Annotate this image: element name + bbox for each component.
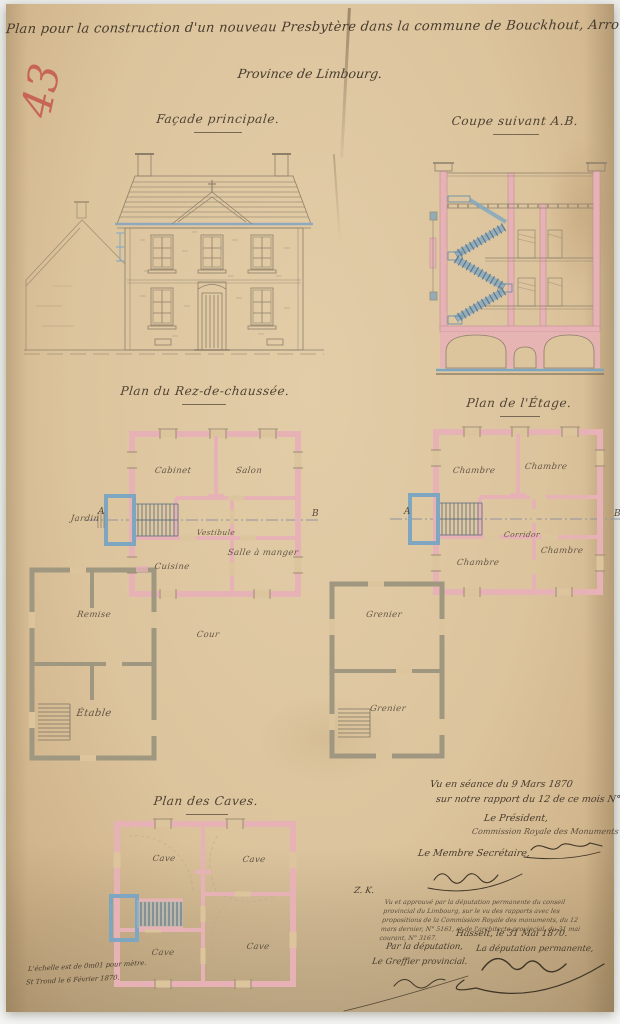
room-label-cabinet: Cabinet bbox=[154, 466, 192, 476]
side-annex-gable bbox=[26, 202, 125, 350]
signature-secretary bbox=[428, 874, 522, 891]
etage-title-rule bbox=[500, 416, 540, 417]
signature-deputation bbox=[456, 959, 604, 994]
signature-president bbox=[524, 843, 602, 859]
scanned-plan-page: { "colors":{ "paper":"#dcc49d","wall_pin… bbox=[0, 0, 620, 1024]
room-label-corridor: Corridor bbox=[503, 530, 540, 539]
room-label-chambre-4: Chambre bbox=[540, 546, 584, 556]
room-label-chambre-2: Chambre bbox=[524, 462, 568, 472]
signatures-overlay bbox=[336, 764, 620, 1014]
facade-title-rule bbox=[194, 132, 242, 133]
porch-fragments bbox=[430, 212, 437, 300]
room-label-cave-1: Cave bbox=[152, 854, 176, 864]
staircase-section bbox=[448, 196, 512, 324]
archive-number: 43 bbox=[11, 59, 70, 121]
room-label-grenier-1: Grenier bbox=[365, 610, 402, 620]
room-label-etable: Étable bbox=[76, 708, 113, 719]
room-label-cave-2: Cave bbox=[242, 855, 266, 865]
facade-title: Façade principale. bbox=[156, 112, 281, 126]
signature-greffier bbox=[344, 976, 468, 1011]
coupe-title-rule bbox=[493, 134, 539, 135]
document-title-line1: Plan pour la construction d'un nouveau P… bbox=[5, 18, 614, 37]
etage-title: Plan de l'Étage. bbox=[466, 396, 573, 410]
room-label-grenier-2: Grenier bbox=[369, 704, 406, 714]
coupe-title: Coupe suivant A.B. bbox=[451, 114, 579, 128]
facade-elevation-drawing bbox=[22, 136, 327, 371]
upper-windows bbox=[148, 235, 276, 273]
document-title-line2: Province de Limbourg. bbox=[5, 66, 615, 81]
section-marker-b-rdc: B bbox=[312, 509, 319, 519]
stair-annex-caves bbox=[111, 896, 183, 940]
lower-windows bbox=[148, 288, 276, 329]
room-label-vestibule: Vestibule bbox=[196, 528, 236, 537]
room-label-remise: Remise bbox=[76, 610, 111, 620]
cellar-vaults bbox=[436, 326, 604, 374]
room-label-chambre-3: Chambre bbox=[456, 558, 500, 568]
room-label-cave-3: Cave bbox=[151, 948, 175, 958]
dimension-ticks bbox=[116, 233, 125, 261]
outbuilding-plan bbox=[32, 570, 154, 758]
chimneys bbox=[135, 154, 291, 176]
section-drawing bbox=[430, 138, 610, 383]
main-roof bbox=[117, 176, 311, 224]
crease-line-2 bbox=[333, 154, 341, 244]
section-marker-a-rdc: A bbox=[98, 507, 105, 517]
paper-sheet: Plan pour la construction d'un nouveau P… bbox=[6, 4, 614, 1012]
room-label-cuisine: Cuisine bbox=[154, 562, 190, 572]
room-label-chambre-1: Chambre bbox=[452, 466, 496, 476]
rdc-title-rule bbox=[182, 404, 226, 405]
room-label-salle-a-manger: Salle à manger bbox=[227, 548, 299, 558]
rdc-title: Plan du Rez-de-chaussée. bbox=[120, 384, 291, 398]
caves-title: Plan des Caves. bbox=[153, 794, 259, 808]
room-label-salon: Salon bbox=[235, 466, 263, 476]
label-cour: Cour bbox=[196, 630, 220, 640]
room-label-cave-4: Cave bbox=[246, 942, 270, 952]
front-door bbox=[194, 282, 230, 350]
section-marker-b-etage: B bbox=[614, 509, 620, 519]
label-jardin: Jardin bbox=[70, 514, 100, 524]
section-marker-a-etage: A bbox=[404, 507, 411, 517]
